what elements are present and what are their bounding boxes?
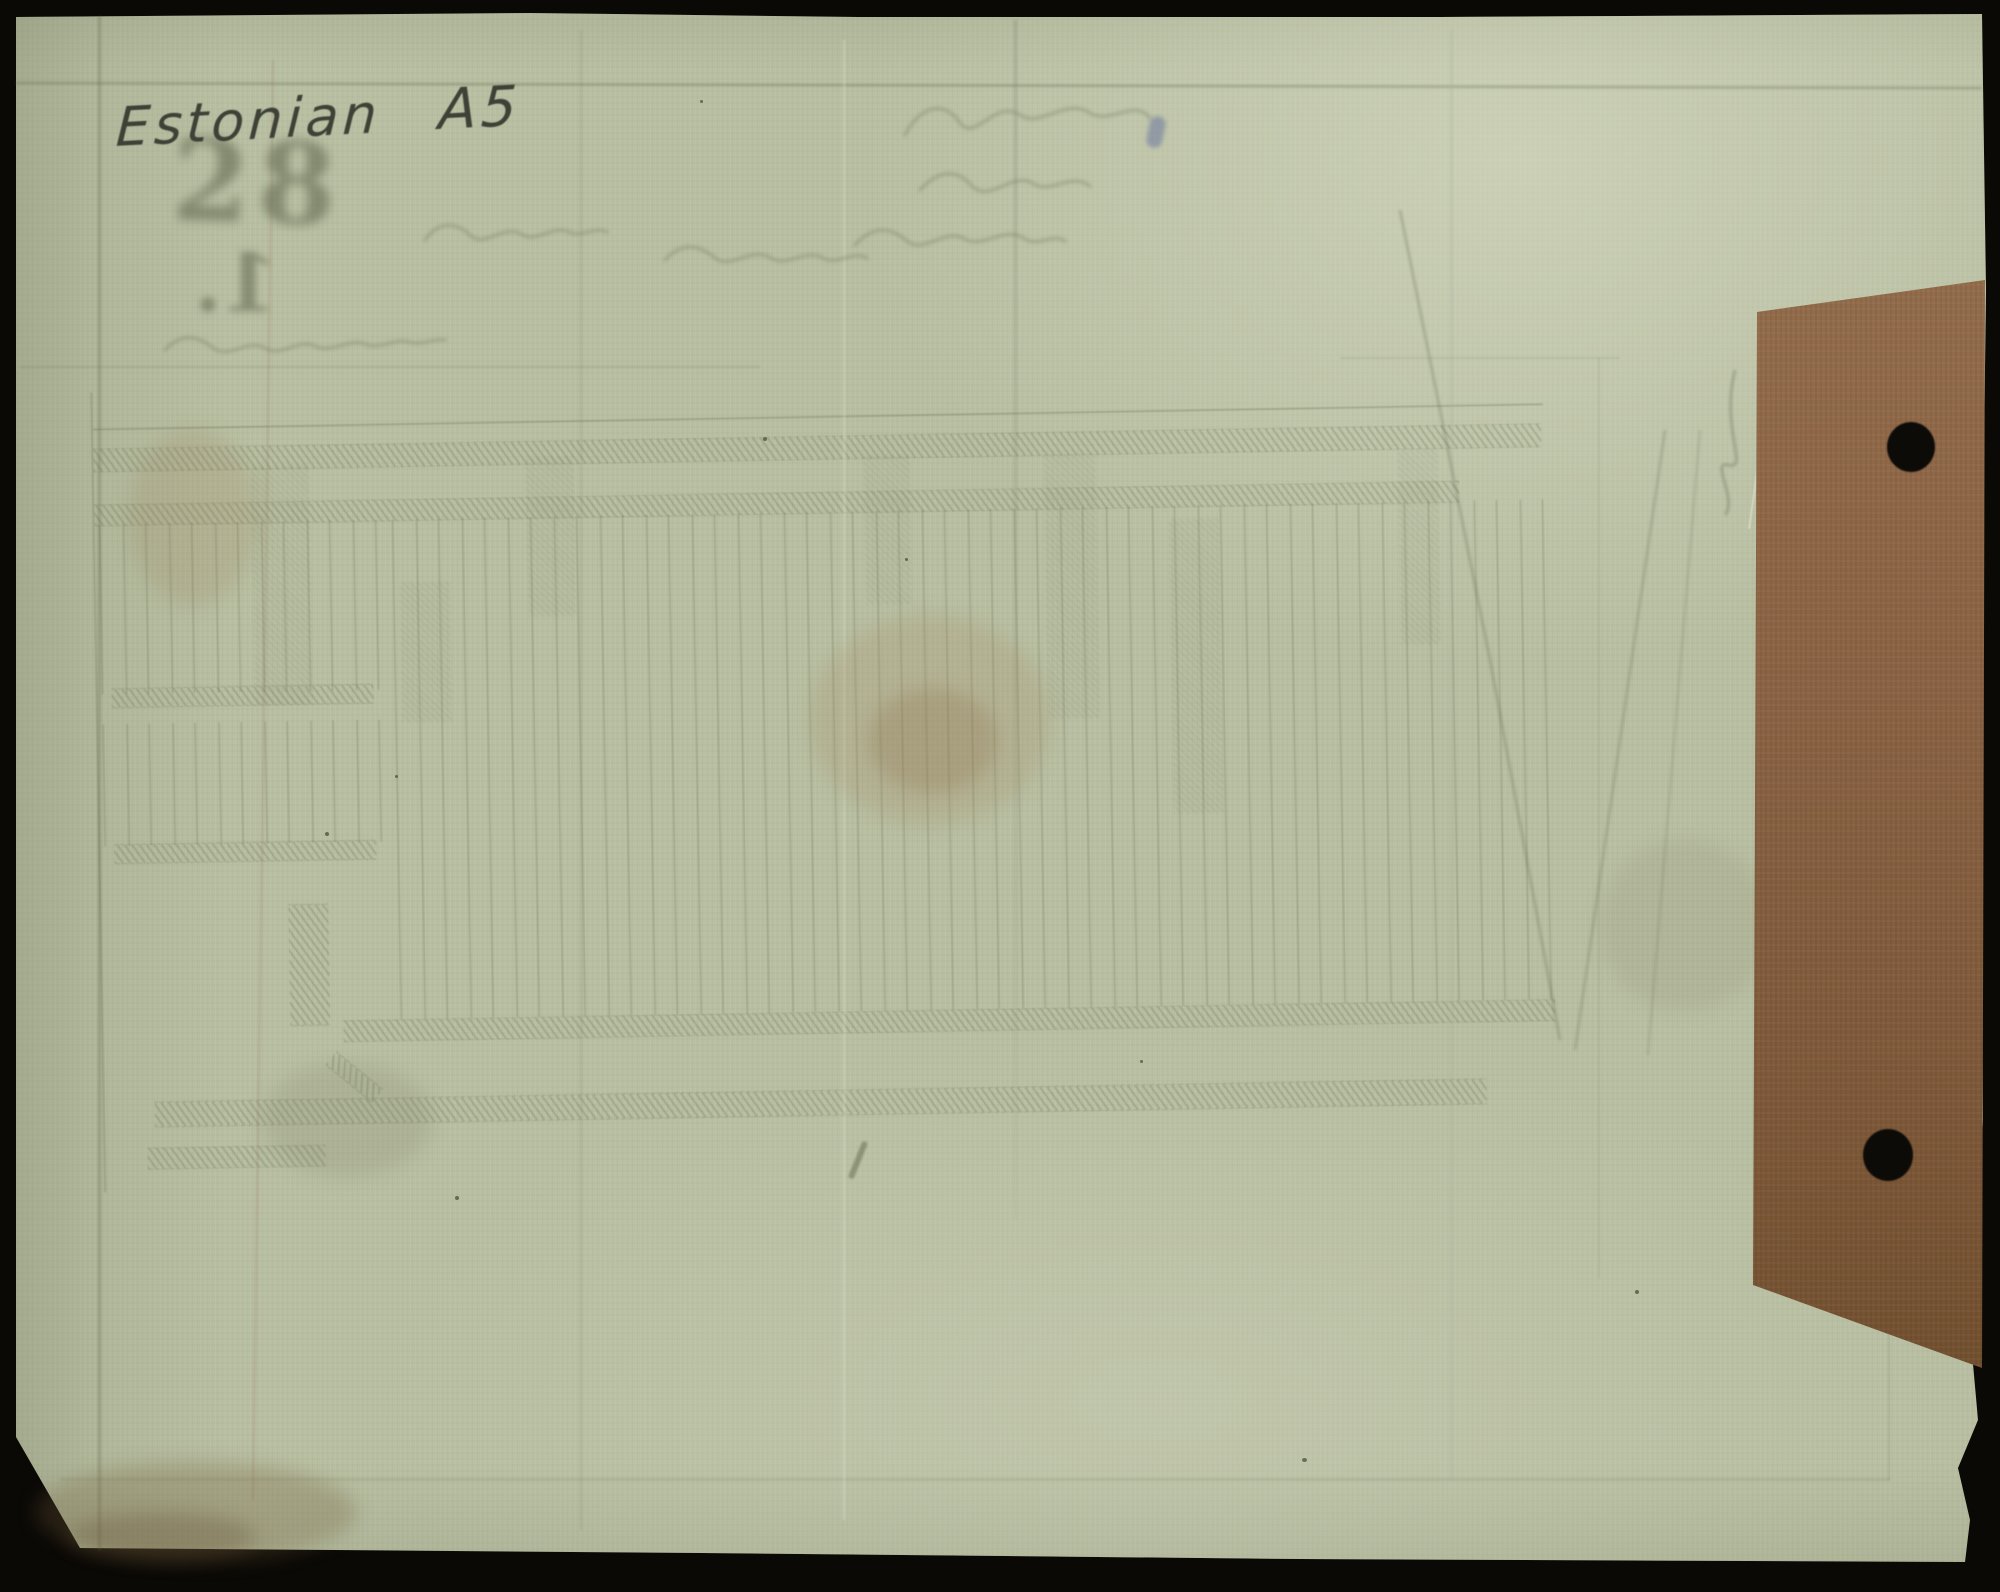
- ghost-coupon-feet-1: [111, 684, 373, 709]
- ghost-hatch-accent: [864, 454, 913, 605]
- ghost-coupon-columns-left-row-2: [102, 719, 390, 846]
- stain-bottom-left-core: [66, 1512, 256, 1560]
- ghost-hatch-accent: [525, 456, 576, 617]
- ghost-coupon-feet-2: [114, 840, 376, 865]
- binding-strip: [1750, 278, 1988, 1372]
- stain-right-mid: [1600, 840, 1770, 1010]
- punch-hole-top: [1887, 422, 1935, 472]
- ghost-hatch-accent: [400, 581, 452, 722]
- punch-hole-bottom: [1863, 1129, 1913, 1181]
- scan-root: 28 1. EstonianA5: [0, 0, 2000, 1592]
- crease-vertical-1: [98, 16, 101, 1550]
- paper-speck: [905, 558, 908, 561]
- ghost-band-1: [93, 423, 1541, 472]
- ghost-elbow-hatch: [288, 904, 330, 1027]
- annotation-language: Estonian: [115, 82, 383, 159]
- stain-center-core: [868, 688, 998, 793]
- paper-speck: [1302, 1458, 1307, 1462]
- paper-speck: [455, 1196, 459, 1200]
- stain-smudge-mid-left: [262, 1062, 432, 1177]
- annotation-format: A5: [437, 73, 522, 143]
- stain-left-column: [128, 430, 258, 605]
- paper-speck: [1635, 1290, 1639, 1294]
- paper-speck: [1140, 1060, 1143, 1063]
- ghost-outline-horizontal-bottom: [60, 1478, 1890, 1481]
- paper-speck: [325, 832, 329, 836]
- ghost-hatch-accent: [1169, 518, 1224, 814]
- ghost-hatch-accent: [251, 465, 313, 706]
- paper-speck: [395, 775, 398, 778]
- ghost-hatch-accent: [1044, 453, 1101, 719]
- paper-speck: [763, 437, 767, 441]
